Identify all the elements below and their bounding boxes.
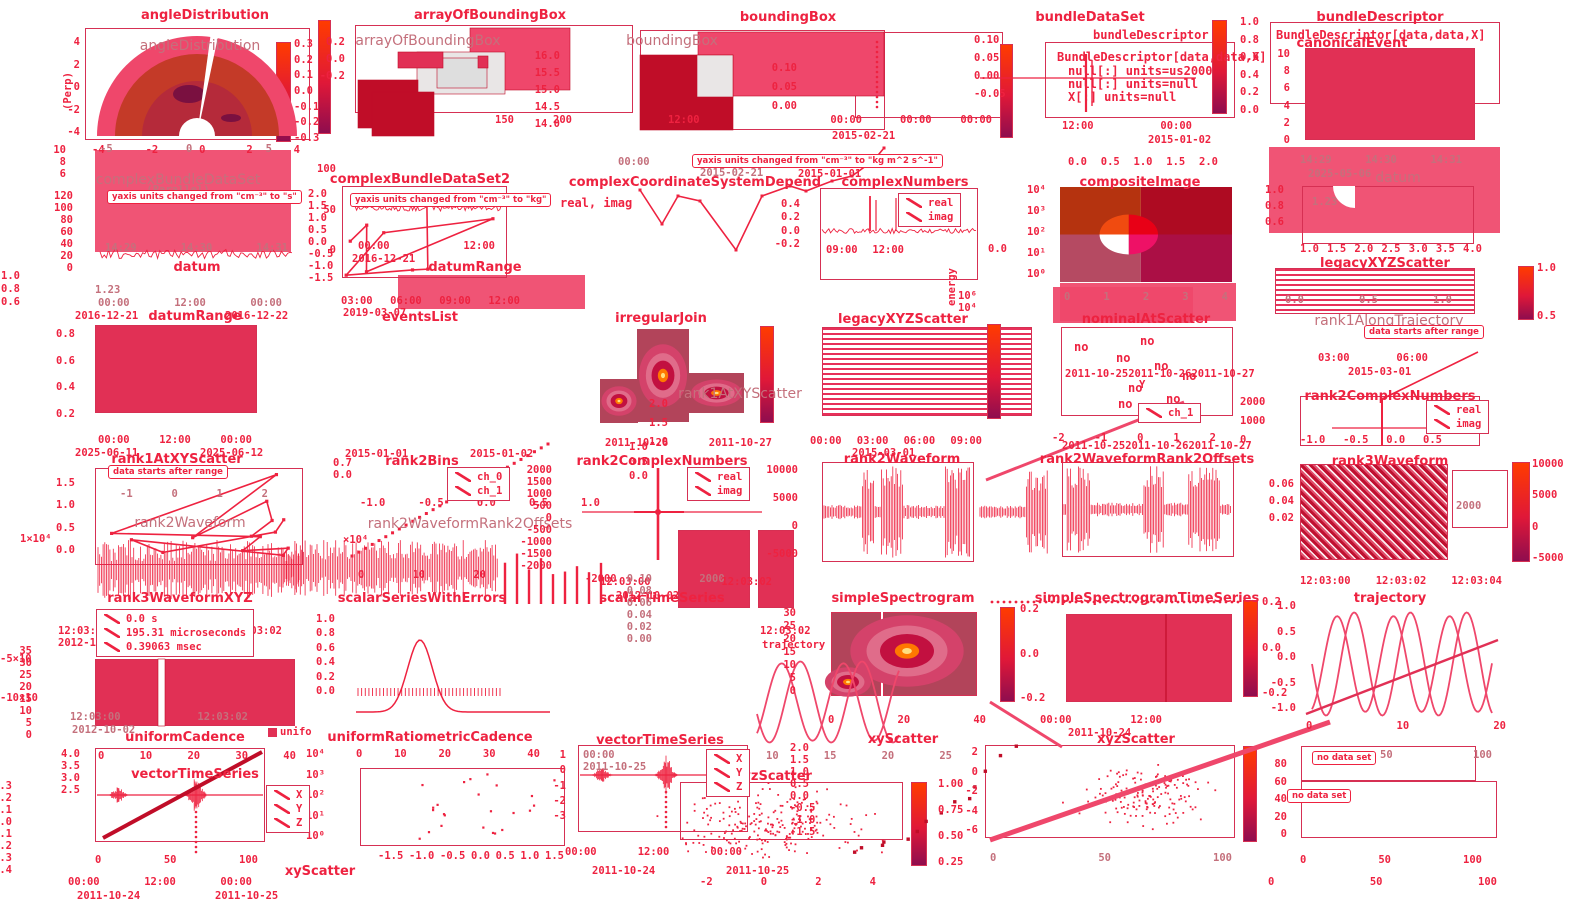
rank2ComplexNumbers-ytick: 0.0 xyxy=(602,470,648,482)
datum2-yticks: 1.00.80.6 xyxy=(1238,184,1284,228)
datum2-xticks: 1.01.52.02.53.03.54.0 xyxy=(1300,243,1482,255)
marker xyxy=(883,147,886,150)
irregularJoin-ytick: 2.0 xyxy=(622,398,668,410)
scalarTimeSeries-ytick: 0.04 xyxy=(606,609,652,621)
bundleDescriptor-ytick: 1.0 xyxy=(1240,16,1286,28)
scatter-point-large xyxy=(882,840,885,843)
rank3WaveformXYZ-ytick: 0.2 xyxy=(316,671,362,683)
datum1-label: 2016-12-21 xyxy=(75,310,138,322)
rank3WaveformXYZ-ytick: 0.4 xyxy=(316,656,362,668)
simpleSpectrogram-xtick: 0 xyxy=(828,714,834,726)
legacyXYZScatter2-xtick: 0.0 xyxy=(1285,294,1304,306)
rank1AlongTrajectory-annotation: data starts after range xyxy=(1364,325,1484,339)
complexBundleDataSet-xtick: 0 xyxy=(186,143,192,155)
rank3Waveform-title: rank3Waveform xyxy=(1332,454,1449,469)
simpleSpectrogramTimeSeries-title: simpleSpectrogramTimeSeries xyxy=(1035,591,1259,606)
rank2Bins-label: 2015-01-01 xyxy=(345,448,408,460)
datum1-label: 1.23 xyxy=(95,284,120,296)
dotted-diagonal xyxy=(371,543,374,546)
boundingBox-xtick: 00:00 xyxy=(830,114,862,126)
line-swatch-icon xyxy=(714,782,730,792)
dotted-diagonal xyxy=(540,446,543,449)
rank2ComplexNumbers2-legend-item: real xyxy=(1434,404,1481,416)
vectorTimeSeries-legend-item: X xyxy=(274,789,302,801)
rank2ComplexNumbers2-legend-label: real xyxy=(1456,404,1481,416)
irregularJoin-yticks: 2.01.51.0 xyxy=(622,398,668,448)
sine-curve xyxy=(1312,616,1492,712)
complexBundleDataSet-ytick: 60 xyxy=(27,226,73,238)
scatter-point xyxy=(764,854,766,856)
rank1AtXYScatter-ytick: 1.0 xyxy=(29,499,75,511)
image-quadrant xyxy=(1141,187,1232,235)
xyzScatter2-ytick: -4 xyxy=(932,805,978,817)
complexNumbers-legend-item: imag xyxy=(906,211,953,223)
simpleSpectrogram-frame xyxy=(883,612,977,696)
nominalAtScatter-legend-item: ch_1 xyxy=(1146,407,1193,419)
scatter-point xyxy=(844,841,846,843)
complexBundleDataSet2-yticks: 100500 xyxy=(290,163,336,256)
rank1AlongTrajectory-xtick: 06:00 xyxy=(1396,352,1428,364)
vectorTimeSeries2-legend-label: X xyxy=(736,753,742,765)
complexCoordinateSystemDepend-annotation: yaxis units changed from "cm⁻³" to "kg m… xyxy=(692,154,943,168)
uniformCadence-ytick: 10 xyxy=(0,705,32,717)
marker xyxy=(735,249,738,252)
line-swatch-icon xyxy=(906,198,922,208)
complexNumbers-xtick: 09:00 xyxy=(826,244,858,256)
bundleDescriptor-xticks: 12:0000:00 xyxy=(1062,120,1192,132)
rank1AtXYScatterInner-title: rank1AtXYScatter xyxy=(678,386,802,402)
datum2-ytick: 0.8 xyxy=(1238,200,1284,212)
simpleSpectrogram-yticks: 0.20.0-0.2 xyxy=(1020,603,1066,704)
vectorTimeSeries2-legend-item: Y xyxy=(714,767,742,779)
line-swatch-icon xyxy=(695,486,711,496)
trajectory-xticks: 01020 xyxy=(1306,720,1506,732)
irregularJoin-ytick: 1.0 xyxy=(622,436,668,448)
complexCoordinateSystemDepend-label: 2015-02-21 xyxy=(700,167,763,179)
rank2ComplexNumbers2-xtick: -0.5 xyxy=(1343,434,1368,446)
vectorTimeSeries-legend-label: Y xyxy=(296,803,302,815)
simpleSpectrogram-ytick: 5 xyxy=(750,672,796,684)
nominalAtScatter-xtick: -2 xyxy=(1052,432,1065,444)
uniformRatiometricCadence-xtick: 0 xyxy=(356,748,362,760)
complexBundleDataSet2-xtick: 00:00 xyxy=(358,240,390,252)
scatter-point xyxy=(692,842,694,844)
uniformRatiometricCadence-xtick: 30 xyxy=(483,748,496,760)
nominalAtScatter-legend: ch_1 xyxy=(1138,403,1201,423)
complexBundleDataSet-ytick: 120 xyxy=(27,190,73,202)
xyScatter2-xtick: 0.5 xyxy=(496,850,515,862)
xyzScatter2-frame xyxy=(985,745,1235,838)
rank2Bins-legend-label: ch_1 xyxy=(477,485,502,497)
rank3Waveform-ytick: 10000 xyxy=(1532,458,1569,470)
datum1-ytick: 0.8 xyxy=(0,283,20,295)
rank2ComplexNumbers-legend-item: imag xyxy=(695,485,742,497)
rank2Waveform-ytick: 5000 xyxy=(752,492,798,504)
datum1-xtick: 00:00 xyxy=(98,297,130,309)
xyzScatter2-yticks: 20-2-4-6 xyxy=(932,746,978,836)
noData2-xticks: 050100 xyxy=(1268,876,1497,888)
dotted-diagonal xyxy=(533,450,536,453)
line-swatch-icon xyxy=(104,642,120,652)
xyzScatter-yticks: 2.01.51.00.50.0-0.5-1.0-1.5 xyxy=(790,742,836,832)
complexBundleDataSet2-annotation: yaxis units changed from "cm⁻³" to "kg" xyxy=(350,193,551,207)
xyzScatter2-xticks: 050100 xyxy=(990,852,1232,864)
legacyXYZScatter2-yticks: 1.00.5 xyxy=(1537,262,1569,322)
scatter-point xyxy=(698,842,700,844)
arrayOfBoundingBox-ytick: 0.2 xyxy=(299,36,345,48)
xyzScatter2-ytick: 2 xyxy=(932,746,978,758)
nominalAtScatter-xtick: 0 xyxy=(1137,432,1143,444)
arrayOfBoundingBox-xticks: 150200 xyxy=(495,114,572,126)
angleDistribution-yticks: 420-2-4 xyxy=(34,36,80,138)
legend-square-swatch xyxy=(268,728,277,737)
rank2WaveformRank2OffsetsInner-ytick: -500 xyxy=(506,524,552,536)
scatter-point xyxy=(786,847,788,849)
boundingBox-label: 2015-02-21 xyxy=(832,130,895,142)
compositeImage-yticks: 10⁴10³10²10¹10⁰ xyxy=(1000,184,1046,280)
simpleSpectrogram-ytick: 10 xyxy=(750,659,796,671)
boundingBox-title: boundingBox xyxy=(740,10,836,25)
noData2-xticks: 050100 xyxy=(1300,854,1482,866)
scatter-point xyxy=(788,849,790,851)
rank1AtXYScatter-annotation: data starts after range xyxy=(108,465,228,479)
vectorTimeSeries-ytick: 10² xyxy=(306,789,352,801)
vectorTimeSeries-ytick: 0.2 xyxy=(0,792,12,804)
noData1-xticks: 50100 xyxy=(1380,749,1492,761)
complexNumbers-ytick: 0.2 xyxy=(754,211,800,223)
legacyXYZScatter-xtick: 03:00 xyxy=(857,435,889,447)
vectorTimeSeries-yticks: 4.03.53.02.5 xyxy=(34,748,80,792)
nominalAtScatter-xtick: 1 xyxy=(1173,432,1179,444)
complexNumbers-legend: realimag xyxy=(898,193,961,227)
xyzScatter-xtick: 0 xyxy=(761,876,767,888)
vectorTimeSeries2-legend-item: X xyxy=(714,753,742,765)
nominalAtScatter-xtick: 2 xyxy=(1210,432,1216,444)
xyzScatter-ytick: 0.0 xyxy=(790,790,836,802)
canonicalEvent-title: canonicalEvent xyxy=(1297,36,1408,51)
vectorTimeSeries2-ytick: -3 xyxy=(520,810,566,822)
noData2-xtick: 100 xyxy=(1463,854,1482,866)
datumRange-ytick: 0.2 xyxy=(29,408,75,420)
simpleSpectrogram-label: 12:03:02 xyxy=(760,625,811,637)
bundleDescriptor-label: null[:] units=us2000 xyxy=(1068,64,1213,78)
complexCoordinateSystemDepend-title: complexCoordinateSystemDepend xyxy=(569,175,821,190)
figure-canvas: angleDistributionangleDistribution(Perp)… xyxy=(0,0,1569,904)
xyzScatter-xticks: -2024 xyxy=(700,876,876,888)
noData2-xtick: 0 xyxy=(1300,854,1306,866)
vectorTimeSeries-xtick: 20 xyxy=(187,750,200,762)
datumRange-xtick: 00:00 xyxy=(220,434,252,446)
compositeImage-title: compositeImage xyxy=(1080,175,1201,190)
vectorTimeSeries2-xtick: 00:00 xyxy=(710,846,742,858)
vectorTimeSeries-xtick: 00:00 xyxy=(68,876,100,888)
complexBundleDataSet-ytick: 8 xyxy=(20,156,66,168)
scatter-point xyxy=(881,851,883,853)
angleDistribution-title: angleDistribution xyxy=(141,8,269,23)
rank2WaveformRank2OffsetsInner-ytick: 500 xyxy=(506,500,552,512)
bundleDataSet-title: bundleDataSet xyxy=(1035,10,1144,25)
line-swatch-icon xyxy=(274,804,290,814)
bundleDataSet-ytick: 0.05 xyxy=(974,52,1020,64)
rank2WaveformRank2Offsets-ytick: 2000 xyxy=(1240,396,1286,408)
vectorTimeSeries-ytick: 0.1 xyxy=(0,804,12,816)
line-swatch-icon xyxy=(274,790,290,800)
boundingBox-yticks: 0.100.050.00 xyxy=(751,62,797,112)
uniformCadence-legend-item: 195.31 microseconds xyxy=(104,627,246,639)
heat-blob-core xyxy=(661,373,665,378)
boundingBox-ytick: 0.05 xyxy=(751,81,797,93)
crosshair-center xyxy=(655,509,661,515)
scatter-point xyxy=(751,853,753,855)
vectorTimeSeries2-ytick: 0 xyxy=(520,764,566,776)
scalarSeriesWithErrors-xtick: 10 xyxy=(413,569,426,581)
complexNumbers-ytick: -0.2 xyxy=(754,238,800,250)
datum2-title: datum xyxy=(1375,170,1420,186)
rank2WaveformRank2OffsetsInner-ytick: 2000 xyxy=(506,464,552,476)
simpleSpectrogram-ytick: 0.0 xyxy=(1020,648,1066,660)
noData2-xtick: 50 xyxy=(1370,876,1383,888)
vectorTimeSeries-ytick: 10¹ xyxy=(306,810,352,822)
rank2Bins-xtick: 1.0 xyxy=(581,497,600,509)
irregularJoin-xtick: 2011-10-27 xyxy=(709,437,772,449)
datumRange-frame xyxy=(95,325,257,413)
canonicalEvent-ytick: 0 xyxy=(1244,134,1290,146)
xyzScatter2-ytick: -6 xyxy=(932,824,978,836)
arrayOfBoundingBox-ytick: 16.0 xyxy=(514,50,560,62)
compositeImage-xtick: 3 xyxy=(1182,291,1188,303)
datumRange-ytick: 0.8 xyxy=(29,328,75,340)
complexNumbers-yticks: 0.40.20.0-0.2 xyxy=(754,198,800,250)
xyzScatter-ytick: -1.0 xyxy=(790,814,836,826)
scatter-point xyxy=(685,842,687,844)
rank2WaveformRank2OffsetsInner-yticks: 2000150010005000-500-1000-1500-2000 xyxy=(506,464,552,558)
rank1AtXYScatter-label: 1×10⁴ xyxy=(20,533,52,545)
line-swatch-icon xyxy=(1434,419,1450,429)
datum2-label: 2025-05-06 xyxy=(1308,168,1371,180)
datum2-xtick: 2.0 xyxy=(1354,243,1373,255)
uniformRatiometricCadence-xtick: 20 xyxy=(438,748,451,760)
eventsList-xtick: 12:00 xyxy=(488,295,520,307)
scatter-point xyxy=(738,841,740,843)
vectorTimeSeries-xticks: 00:0012:0000:00 xyxy=(68,876,252,888)
rank3Waveform-xtick: 12:03:02 xyxy=(1376,575,1427,587)
datum2-ytick: 0.6 xyxy=(1238,216,1284,228)
scatter-point-large xyxy=(853,850,856,853)
vectorTimeSeries-legend: XYZ xyxy=(266,785,310,833)
datum2-xtick: 14:30 xyxy=(1365,154,1397,166)
noData2-yticks: 806040200 xyxy=(1241,758,1287,840)
trajectory-title: trajectory xyxy=(1354,591,1426,606)
bundleDescriptor-colorbar xyxy=(1212,20,1227,114)
line-swatch-icon xyxy=(714,754,730,764)
trajectory-ytick: 0.5 xyxy=(1250,626,1296,638)
rank1AlongTrajectory-xticks: 03:0006:00 xyxy=(1318,352,1428,364)
boundingBox-xtick: 12:00 xyxy=(668,114,700,126)
vectorTimeSeries-xtick: 100 xyxy=(239,854,258,866)
rank3Waveform-ytick: 0 xyxy=(1532,521,1569,533)
rank3Waveform-frame xyxy=(1300,464,1448,560)
complexBundleDataSet2-ytick: 50 xyxy=(290,204,336,216)
ellipse-quadrant xyxy=(1100,215,1129,235)
angleDistribution-ytick: -4 xyxy=(34,126,80,138)
trajectory-xtick: 20 xyxy=(1493,720,1506,732)
vectorTimeSeries2-yticks: 10-1-2-3 xyxy=(520,749,566,822)
xyzScatter-xtick: -2 xyxy=(700,876,713,888)
rank2WaveformRank2OffsetsInner-ytick: 0 xyxy=(506,512,552,524)
xyScatter2-xtick: -1.5 xyxy=(378,850,403,862)
xyzScatter-ytick: 2.0 xyxy=(790,742,836,754)
arrayOfBoundingBox-ytick: 15.5 xyxy=(514,67,560,79)
legacyXYZScatter2-ytick: 1.0 xyxy=(1537,262,1569,274)
vectorTimeSeries-xticks: 010203040 xyxy=(98,750,296,762)
rank1AtXYScatter-ytick: 1.5 xyxy=(29,477,75,489)
burst-waveform-glyph xyxy=(980,471,1047,554)
marker xyxy=(677,195,680,198)
vectorTimeSeries-ytick: 10³ xyxy=(306,769,352,781)
legacyXYZScatter2-xticks: 0.00.51.0 xyxy=(1285,294,1452,306)
dot-marker xyxy=(997,601,1000,604)
scalarTimeSeries-ytick: 0.00 xyxy=(606,633,652,645)
rank2Bins-xtick: -1.0 xyxy=(360,497,385,509)
scatter-point xyxy=(790,843,792,845)
rank2Bins-yticks: 0.70.0 xyxy=(306,457,352,476)
rank2Waveform-frame xyxy=(822,462,974,562)
scatter-point xyxy=(839,847,841,849)
xyzScatter-ytick: -1.5 xyxy=(790,826,836,838)
sine-curve xyxy=(1312,612,1492,715)
xyzScatter2-ytick: 0 xyxy=(932,766,978,778)
noData2-ytick: 60 xyxy=(1241,776,1287,788)
complexCoordinateSystemDepend-label: real, imag xyxy=(560,196,632,210)
dotted-diagonal xyxy=(364,547,367,550)
scatter-point xyxy=(795,843,797,845)
uniformRatiometricCadence-xticks: 010203040 xyxy=(356,748,540,760)
datum1-xticks: 00:0012:0000:00 xyxy=(98,297,282,309)
scatter-point xyxy=(764,840,766,842)
rank2ComplexNumbers2-xtick: 0.0 xyxy=(1386,434,1405,446)
rank2Waveform-ytick: 0 xyxy=(752,520,798,532)
vectorTimeSeries-xtick: 0 xyxy=(98,750,104,762)
xyzScatter-ytick: 0.25 xyxy=(938,856,984,868)
simpleSpectrogram-title: simpleSpectrogram xyxy=(831,591,974,606)
dot-marker xyxy=(991,601,994,604)
bell-curve xyxy=(356,640,550,712)
canonicalEvent-frame xyxy=(1305,48,1475,140)
eventsList-xtick: 03:00 xyxy=(341,295,373,307)
xyScatter2-xtick: 0.0 xyxy=(471,850,490,862)
uniformCadence-legend-label: 195.31 microseconds xyxy=(126,627,246,639)
scatter-point xyxy=(806,852,808,854)
xyScatter-xtick: 20 xyxy=(882,750,895,762)
rank3Waveform-ytick: 0.04 xyxy=(1248,495,1294,507)
nominalAtScatter-legend-label: ch_1 xyxy=(1168,407,1193,419)
datum2-xtick: 4.0 xyxy=(1463,243,1482,255)
waveform-glyph xyxy=(283,540,497,596)
line-swatch-icon xyxy=(714,768,730,778)
angleDistribution-title: angleDistribution xyxy=(140,38,261,54)
noData2-xtick: 50 xyxy=(1378,854,1391,866)
compositeImage-ytick: 10² xyxy=(1000,226,1046,238)
xyScatter2-xtick: 1.0 xyxy=(520,850,539,862)
complexBundleDataSet-ytick: 0 xyxy=(27,262,73,274)
complexBundleDataSet2-xtick: 12:00 xyxy=(463,240,495,252)
arrayOfBoundingBox-xtick: 200 xyxy=(553,114,572,126)
simpleSpectrogramTimeSeries-xticks: 00:0012:00 xyxy=(1040,714,1162,726)
eventsList-xticks: 03:0006:0009:0012:00 xyxy=(341,295,520,307)
rank2WaveformRank2OffsetsInner-ytick: -1500 xyxy=(506,548,552,560)
vectorTimeSeries-xtick: 30 xyxy=(235,750,248,762)
vectorTimeSeries-ytick: 3.0 xyxy=(34,772,80,784)
scatter-point-large xyxy=(906,837,909,840)
rank1AtXYScatter-xtick: -1 xyxy=(120,488,133,500)
nominalAtScatter-xticks: 2011-10-252011-10-262011-10-27 xyxy=(1065,368,1228,380)
bundleDataSet-yticks: 0.100.050.00-0.05 xyxy=(974,34,1020,100)
legacyXYZScatter-ytick: 10⁶ xyxy=(958,290,1004,302)
simpleSpectrogramTimeSeries-xtick: 00:00 xyxy=(1040,714,1072,726)
trajectory-xtick: 10 xyxy=(1397,720,1410,732)
rank2Waveform-yticks: 1000050000-5000 xyxy=(752,464,798,560)
uniformRatiometricCadence-xtick: 10 xyxy=(394,748,407,760)
error-ticks xyxy=(358,688,500,696)
complexNumbers-legend-item: real xyxy=(906,197,953,209)
noData2-annotation: no data set xyxy=(1287,789,1351,803)
vectorTimeSeries2-legend-label: Y xyxy=(736,767,742,779)
nominalAtScatter-xtick: -1 xyxy=(1095,432,1108,444)
bundleDataSet-xticks: 00:0000:00 xyxy=(900,114,992,126)
legacyXYZScatter-xtick: 00:00 xyxy=(810,435,842,447)
complexBundleDataSet-xticks: 14:2914:3014:31 xyxy=(105,242,288,254)
rank3WaveformXYZ-ytick: 1.0 xyxy=(316,613,362,625)
scalarTimeSeries-ytick: 0.08 xyxy=(606,585,652,597)
rank3Waveform-ytick: -5000 xyxy=(1532,552,1569,564)
scatter-point xyxy=(757,851,759,853)
bundleDataSet-ytick: 0.10 xyxy=(974,34,1020,46)
compositeImage-ytick: 10¹ xyxy=(1000,247,1046,259)
compositeImage-xtick: 2 xyxy=(1143,291,1149,303)
scatter-point xyxy=(735,842,737,844)
uniformRatiometricCadence-title: uniformRatiometricCadence xyxy=(327,730,532,745)
dotted-diagonal xyxy=(378,539,381,542)
vectorTimeSeries-yticks: 0.30.20.10.0-0.1-0.2-0.3-0.4 xyxy=(0,780,12,856)
uniformCadence-xtick: 12:03:02 xyxy=(197,711,248,723)
line-swatch-icon xyxy=(104,628,120,638)
vectorTimeSeries-ytick: -0.4 xyxy=(0,864,12,876)
noData2-ytick: 80 xyxy=(1241,758,1287,770)
vectorTimeSeries2-xticks: 00:0012:0000:00 xyxy=(565,846,742,858)
rank2WaveformRank2OffsetsInner-ytick: 1500 xyxy=(506,476,552,488)
bundleDataSet-ytick: -0.05 xyxy=(974,88,1020,100)
xyzScatter-ytick: 1.5 xyxy=(790,754,836,766)
compositeImage-xticks: 01234 xyxy=(1064,291,1228,303)
bundleDescriptor-xtick: 00:00 xyxy=(1160,120,1192,132)
line-swatch-icon xyxy=(104,614,120,624)
xyScatter2-xticks: -1.5-1.0-0.50.00.51.01.5 xyxy=(378,850,564,862)
irregularJoin-ytick: 1.5 xyxy=(622,417,668,429)
image-quadrant xyxy=(1060,235,1141,283)
legacyXYZScatter-yticks: 10⁶10⁴ xyxy=(958,290,1004,310)
uniformCadence-legend-label: 0.0 s xyxy=(126,613,158,625)
simpleSpectrogramTimeSeries-frame xyxy=(1066,614,1232,702)
simpleSpectrogram-colorbar xyxy=(1000,607,1015,702)
rank3Waveform-yticks: 0.060.040.02 xyxy=(1248,478,1294,524)
vectorTimeSeries-xticks: 050100 xyxy=(95,854,258,866)
line-swatch-icon xyxy=(274,818,290,828)
datum2-xticks: 14:2914:3014:31 xyxy=(1300,154,1462,166)
angleDistribution-ytick: 0.0 xyxy=(294,85,340,97)
scatter-point-large xyxy=(881,844,884,847)
eventsList-xtick: 06:00 xyxy=(390,295,422,307)
rank1AlongTrajectory-label: 2015-03-01 xyxy=(1348,366,1411,378)
